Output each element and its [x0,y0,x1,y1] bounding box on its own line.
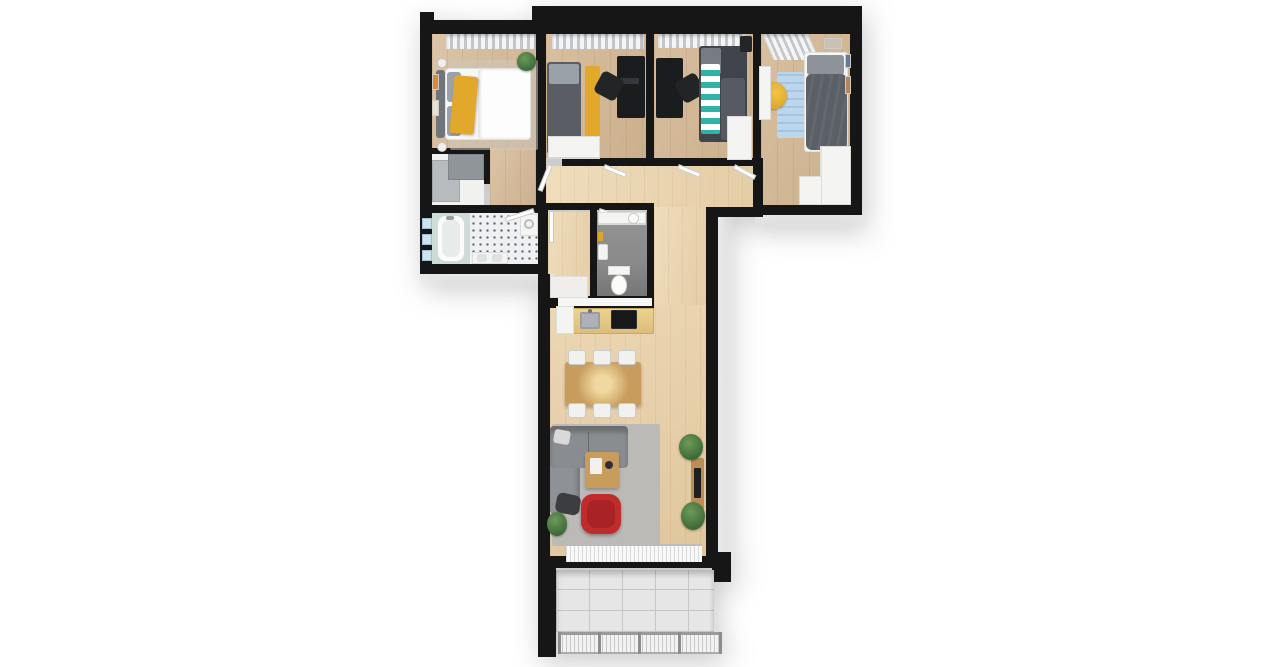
wall-balcony-left [538,560,556,657]
kitchen-cooktop [611,310,637,329]
bathtub-faucet [446,216,454,220]
bathtub-basin [442,220,460,257]
coffee-table-bowl [605,461,613,469]
balcony-floor [556,570,714,632]
dining-chair [568,350,586,365]
bedroom4-side-unit [799,176,822,205]
wall-closet-right [484,148,490,184]
wall-top-master [420,20,546,34]
master-plant [517,52,536,71]
bedroom4-desk [759,66,771,120]
tv-screen [694,468,701,498]
wall-bed2-bed3-divider [646,34,654,166]
hallway-floor [546,166,753,207]
kitchen-faucet [588,309,592,313]
wall-wc-left [590,205,597,305]
vanity-basin-1 [477,254,487,262]
balcony-railing-post [678,632,681,654]
bathroom-small-window-2 [422,234,432,245]
ledge-shadow-right-of-living [718,212,736,562]
wc-boiler [628,213,639,224]
ledge-shadow-under-bathroom [420,274,554,288]
living-plant-left [547,512,567,536]
red-armchair-seat [587,500,615,528]
toilet-tank [608,266,630,275]
vanity-basin-2 [492,254,502,262]
wall-balcony-right [712,552,731,582]
floor-plan-canvas [0,0,1280,667]
master-wall-art-1 [432,74,439,90]
sofa-white-pillow [553,429,571,446]
dining-chair [593,350,611,365]
wc-yellow-towel [598,232,603,241]
master-nightstand-lamp-2 [437,142,447,152]
kitchen-backsplash [558,298,652,306]
dining-chair [618,350,636,365]
bedroom4-wall-frame-2 [845,76,851,94]
washing-machine-door [524,219,534,229]
bedroom3-cabinet [727,116,752,160]
dining-chair [568,403,586,418]
dining-table [565,362,641,406]
living-room-window-blinds [566,544,702,562]
master-wall-art-2 [432,100,439,116]
kitchen-cabinet [556,306,574,334]
bedroom4-duvet [806,74,847,150]
balcony-railing-post [558,632,561,654]
wall-right-outer [850,6,862,215]
bathroom-small-window-1 [422,218,432,229]
wall-bed4-bottom [753,205,862,215]
balcony-railing-post [638,632,641,654]
coffee-table-magazine [590,458,602,474]
dining-chair [618,403,636,418]
bedroom2-wardrobe [548,136,600,159]
living-plant-right-top [679,434,703,460]
wall-top-bedrooms [532,6,862,34]
master-dressing-strip-floor [490,148,536,205]
master-nightstand-lamp-1 [437,58,447,68]
entry-door-leaf [549,211,554,243]
ledge-shadow-under-bedroom4 [755,215,867,231]
closet-cabinet-tall [448,154,484,180]
bedroom3-shelf [740,36,752,52]
dining-chair [593,403,611,418]
master-window-curtain [446,34,536,49]
apartment-floor-plan [0,0,1280,667]
balcony-railing-post [719,632,722,654]
bedroom4-wall-frame-1 [845,54,851,68]
bedroom3-teal-striped-mattress [701,64,720,134]
living-plant-right-bottom [681,502,705,530]
kitchen-sink [580,312,600,329]
master-yellow-throw [450,75,479,135]
corridor-floor [654,207,706,307]
entry-floor-mat [550,276,588,298]
bedroom2-window-curtain [552,34,644,49]
bedroom4-dresser [820,146,851,205]
bathroom-small-window-3 [422,250,432,261]
balcony-railing-post [598,632,601,654]
bedroom4-bed-pillow [807,55,844,75]
wall-living-right [706,207,718,567]
master-bed-duvet [478,69,530,139]
toilet-bowl [611,275,627,295]
wall-bathroom-bottom [420,264,548,274]
bedroom2-pillow [549,64,579,84]
wall-wc-right [647,205,654,301]
bedroom4-ceiling-frame [824,38,842,49]
wc-small-sink [598,244,608,260]
